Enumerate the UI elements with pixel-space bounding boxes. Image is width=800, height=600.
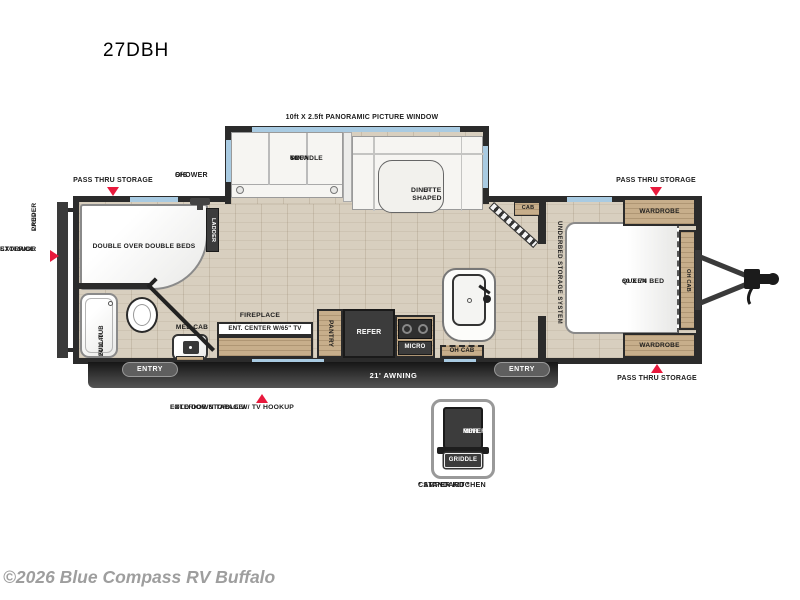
toilet-icon — [126, 297, 158, 333]
entertainment-cabinet — [217, 336, 313, 358]
trundle-sofa: 60"TRUNDLESOFA — [231, 132, 343, 198]
fireplace-label: FIREPLACE — [230, 312, 290, 320]
page-title: 27DBH — [103, 40, 183, 63]
kitchen-oh-cab: OH CAB — [440, 345, 484, 358]
queen-bed: QUEEN BED60 X 74 — [565, 222, 679, 334]
slide-divider — [343, 132, 352, 202]
mini-refer: MINIREFER — [443, 407, 483, 449]
pantry: PANTRY — [317, 309, 343, 358]
pass-thru-storage-label-right-bottom: PASS THRU STORAGE — [607, 375, 707, 383]
ladder-prep-label: LADDERPREP — [31, 187, 57, 231]
underbed-storage-label: UNDERBED STORAGE SYSTEM — [550, 208, 562, 338]
fold-table-arrow-icon — [256, 394, 268, 403]
pass-thru-storage-label-left: PASS THRU STORAGE — [63, 177, 163, 185]
bath-sink-base — [176, 356, 204, 361]
sofa-divider — [268, 133, 270, 185]
floorplan-page: 27DBH 10ft X 2.5ft PANORAMIC PICTURE WIN… — [0, 0, 800, 600]
bench-line — [353, 153, 484, 155]
entry-door-left: ENTRY — [122, 362, 178, 377]
exterior-storage-arrow-icon — [50, 250, 59, 262]
sofa-seat-line — [232, 184, 342, 185]
stove-icon — [398, 319, 432, 339]
camper-kitchen: MINIREFER GRIDDLE — [431, 399, 495, 479]
entry-door-right: ENTRY — [494, 362, 550, 377]
sink-drain — [467, 298, 472, 303]
hitch-icon — [694, 238, 780, 322]
pass-thru-storage-label-right-top: PASS THRU STORAGE — [606, 177, 706, 185]
bench-line — [373, 137, 375, 211]
ladder-mount-icon — [68, 208, 74, 212]
refrigerator: REFER — [343, 309, 395, 358]
sofa-leg-icon — [330, 186, 338, 194]
wardrobe-bottom: WARDROBE — [623, 333, 696, 358]
pass-thru-arrow-icon — [651, 364, 663, 373]
pass-thru-arrow-icon — [650, 187, 662, 196]
awning-label: 21' AWNING — [370, 371, 418, 380]
entertainment-center: ENT. CENTER W/65" TV — [217, 322, 313, 336]
panoramic-window-label: 10ft X 2.5ft PANORAMIC PICTURE WINDOW — [242, 114, 482, 122]
faucet-icon — [483, 295, 491, 303]
shower-head-icon — [190, 198, 210, 205]
bench-line — [461, 137, 463, 211]
kitchen-sink-icon — [452, 274, 486, 326]
window-icon — [130, 197, 178, 202]
copyright-text: ©2026 Blue Compass RV Buffalo — [3, 567, 403, 588]
wardrobe-top: WARDROBE — [623, 198, 696, 226]
window-icon — [567, 197, 612, 202]
tub: 24 X 40FULL TUB — [80, 293, 118, 358]
sofa-leg-icon — [236, 186, 244, 194]
shower-head-icon — [197, 205, 203, 210]
griddle: GRIDDLE — [444, 453, 482, 468]
sink-drain — [189, 346, 192, 349]
microwave: MICRO — [398, 341, 432, 355]
bathroom-wall — [79, 283, 151, 289]
cab-label: CAB — [516, 205, 540, 212]
tub-drain-icon — [108, 301, 113, 306]
ladder-mount-icon — [68, 348, 74, 352]
pass-thru-arrow-icon — [107, 187, 119, 196]
med-cab-label: MED CAB — [170, 324, 214, 332]
bunk-ladder: LADDER — [206, 208, 219, 252]
burner-icon — [402, 324, 412, 334]
toilet-bowl — [133, 304, 151, 326]
dinette-table: U-SHAPEDDINETTE — [378, 160, 444, 213]
bedroom-wall-bottom — [538, 316, 546, 362]
burner-icon — [418, 324, 428, 334]
rear-ladder-icon — [57, 202, 68, 358]
sink-basin-icon — [183, 341, 199, 354]
